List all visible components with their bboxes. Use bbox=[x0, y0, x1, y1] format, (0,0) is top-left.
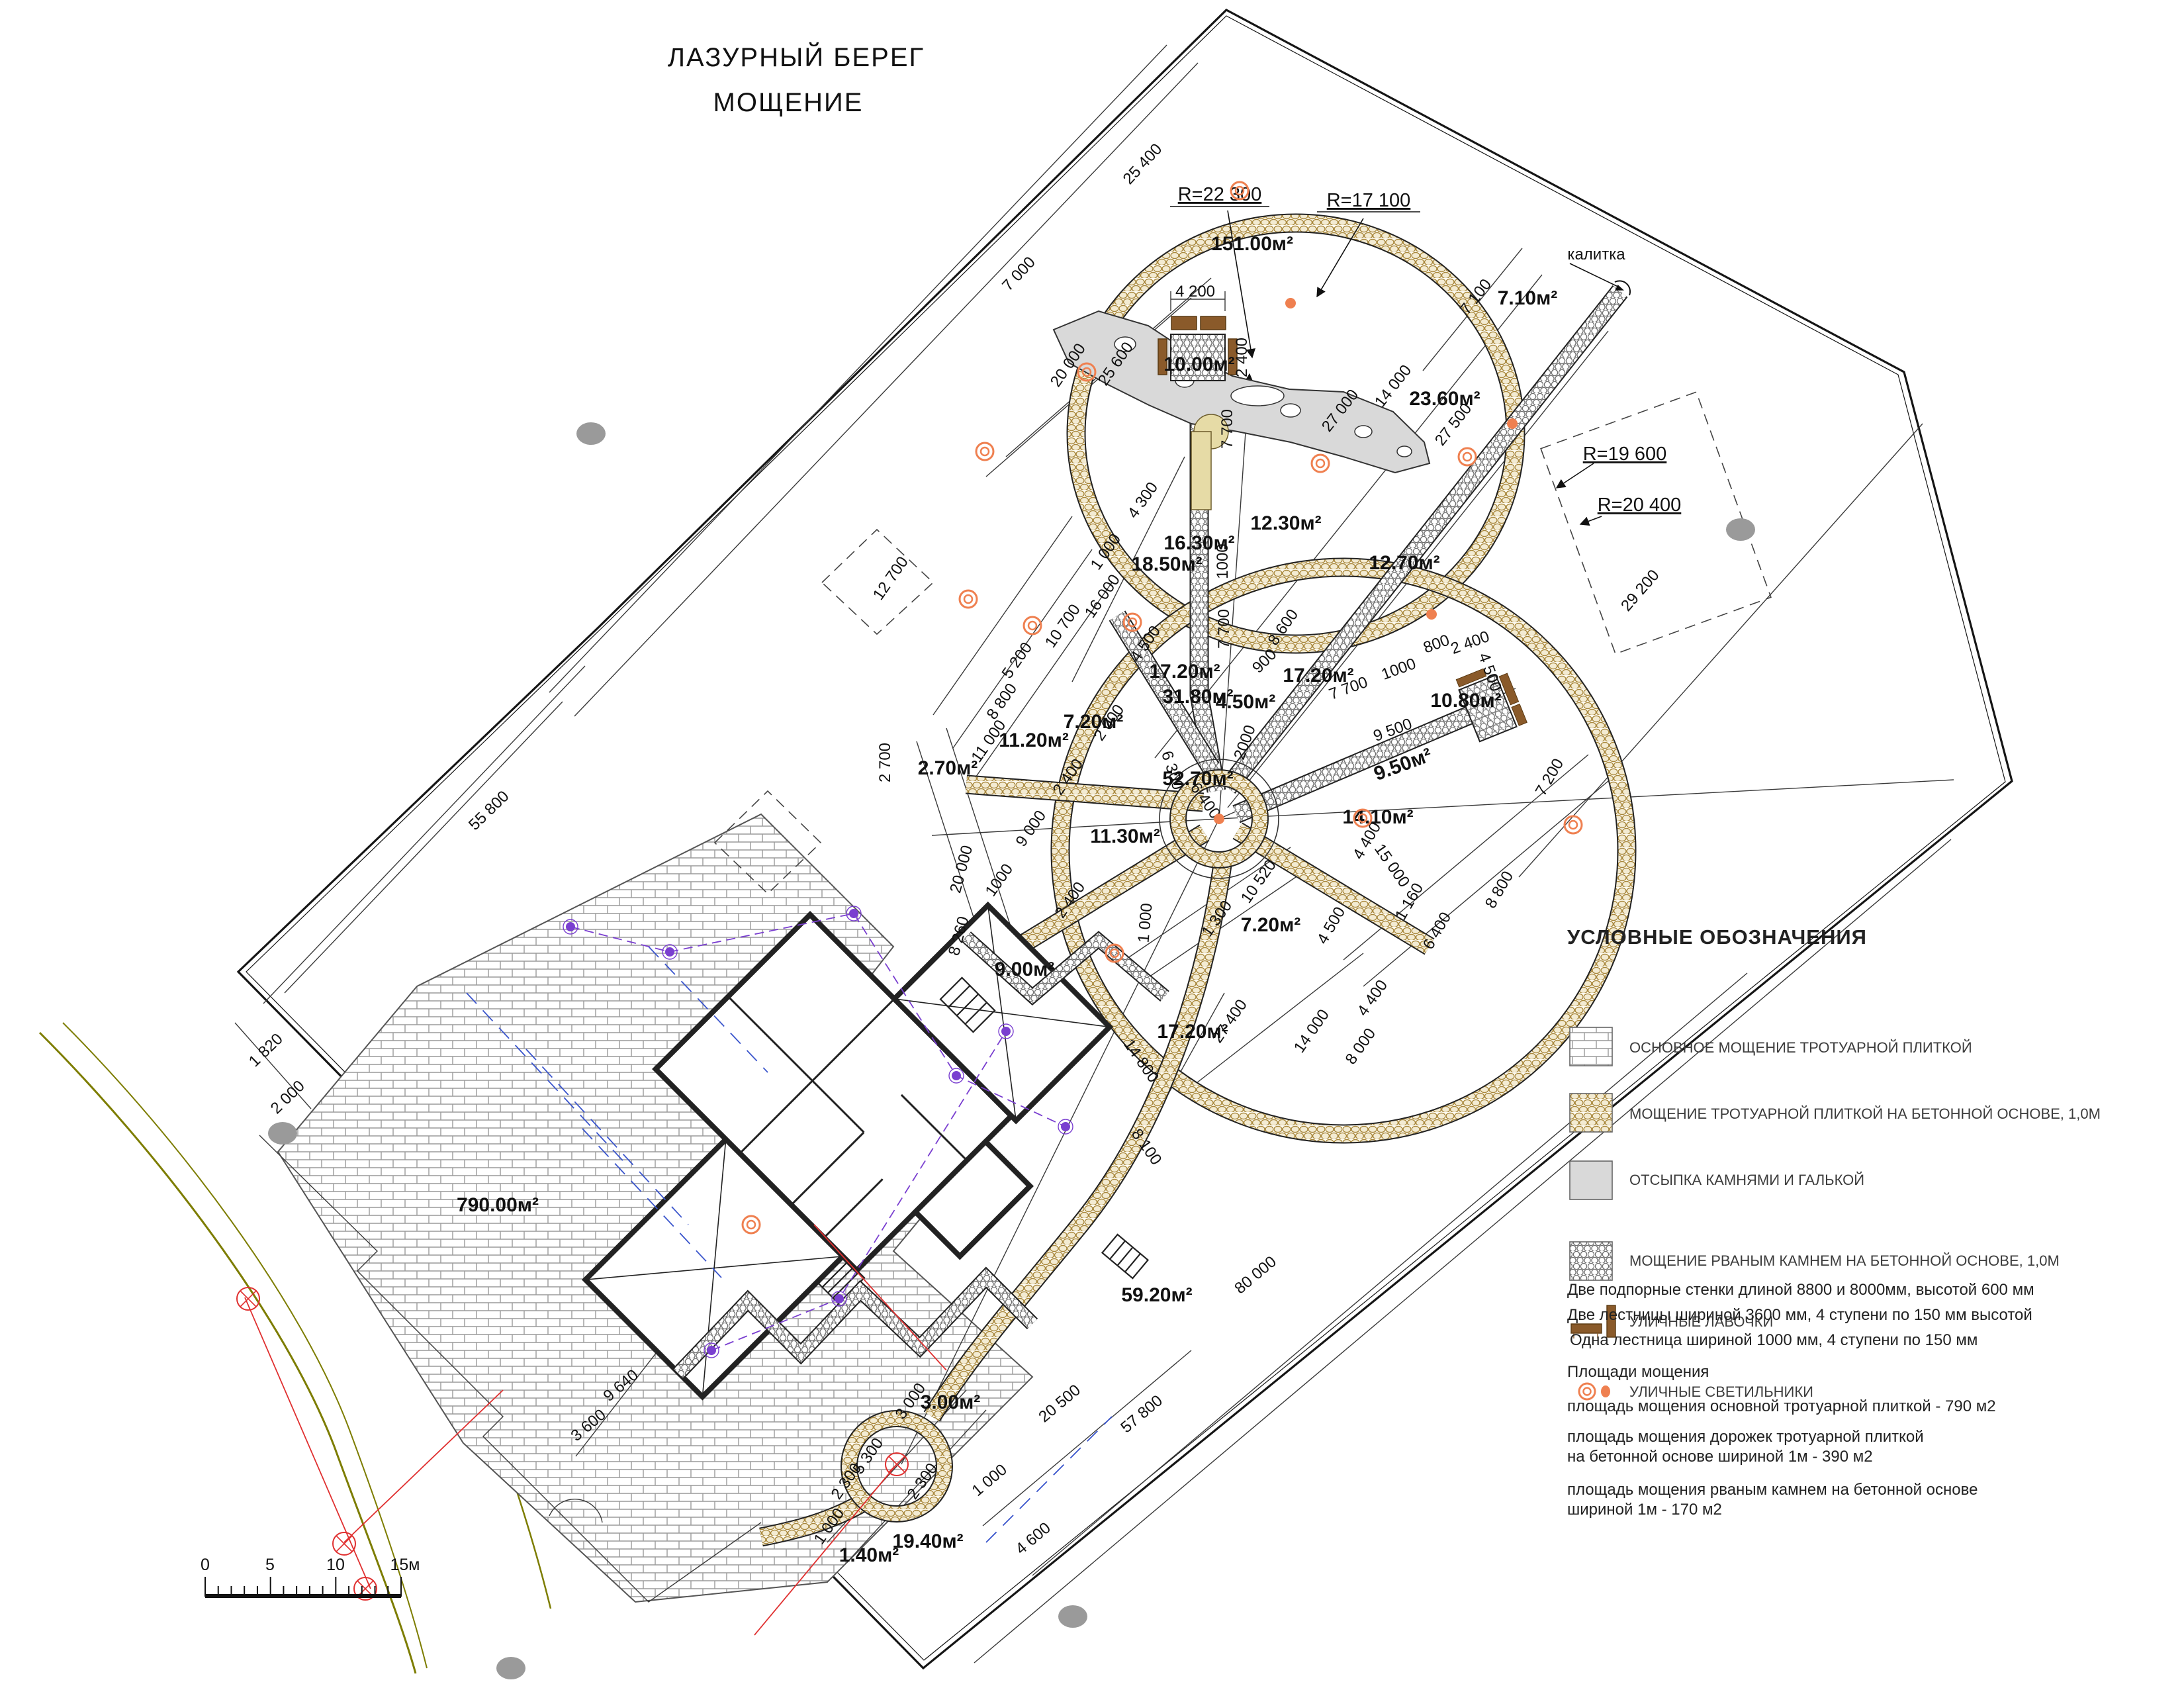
svg-text:4.50м²: 4.50м² bbox=[1216, 691, 1276, 713]
svg-text:8 000: 8 000 bbox=[1342, 1025, 1380, 1068]
svg-text:14 000: 14 000 bbox=[1291, 1006, 1333, 1056]
svg-text:1.40м²: 1.40м² bbox=[839, 1544, 899, 1566]
svg-text:16.30м²: 16.30м² bbox=[1163, 532, 1234, 554]
cobble-swatch bbox=[1570, 1094, 1612, 1132]
svg-text:7 000: 7 000 bbox=[999, 254, 1039, 295]
svg-text:18.50м²: 18.50м² bbox=[1131, 553, 1202, 575]
svg-text:55 800: 55 800 bbox=[465, 787, 513, 833]
svg-text:ОТСЫПКА КАМНЯМИ И ГАЛЬКОЙ: ОТСЫПКА КАМНЯМИ И ГАЛЬКОЙ bbox=[1629, 1172, 1864, 1188]
brick-swatch bbox=[1570, 1027, 1612, 1066]
legend-header: УСЛОВНЫЕ ОБОЗНАЧЕНИЯ bbox=[1567, 925, 1867, 949]
svg-text:3.00м²: 3.00м² bbox=[921, 1391, 981, 1413]
stairs-icon bbox=[1102, 1235, 1148, 1278]
svg-text:R=20 400: R=20 400 bbox=[1598, 494, 1682, 516]
svg-text:800: 800 bbox=[1421, 631, 1452, 657]
legend: УСЛОВНЫЕ ОБОЗНАЧЕНИЯ ОСНОВНОЕ МОЩЕНИЕ ТР… bbox=[1567, 925, 2101, 1400]
svg-text:Одна лестница шириной 1000 мм,: Одна лестница шириной 1000 мм, 4 ступени… bbox=[1570, 1331, 1978, 1349]
svg-text:2 400: 2 400 bbox=[1233, 338, 1251, 377]
svg-text:11.30м²: 11.30м² bbox=[1090, 825, 1160, 847]
svg-text:10 700: 10 700 bbox=[1042, 601, 1084, 651]
svg-text:10.80м²: 10.80м² bbox=[1430, 690, 1501, 712]
svg-text:10.00м²: 10.00м² bbox=[1163, 353, 1234, 375]
svg-text:20 000: 20 000 bbox=[946, 843, 976, 895]
svg-text:7.20м²: 7.20м² bbox=[1241, 914, 1301, 936]
svg-text:2.70м²: 2.70м² bbox=[918, 757, 978, 779]
svg-text:Две подпорные стенки длиной 88: Две подпорные стенки длиной 8800 и 8000м… bbox=[1567, 1281, 2034, 1299]
svg-text:площадь мощения основной троту: площадь мощения основной тротуарной плит… bbox=[1567, 1397, 1996, 1415]
svg-text:25 400: 25 400 bbox=[1120, 140, 1166, 188]
svg-text:1 000: 1 000 bbox=[968, 1461, 1010, 1500]
svg-text:59.20м²: 59.20м² bbox=[1121, 1284, 1192, 1306]
page-subtitle: МОЩЕНИЕ bbox=[713, 88, 864, 117]
svg-text:1 820: 1 820 bbox=[246, 1030, 287, 1070]
svg-text:калитка: калитка bbox=[1567, 246, 1625, 263]
svg-text:4 500: 4 500 bbox=[1314, 904, 1349, 947]
svg-text:на бетонной основе шириной 1м: на бетонной основе шириной 1м - 390 м2 bbox=[1567, 1448, 1873, 1466]
svg-text:12.70м²: 12.70м² bbox=[1369, 552, 1439, 574]
bench-icon bbox=[1171, 316, 1197, 330]
svg-text:4 400: 4 400 bbox=[1354, 976, 1392, 1019]
svg-text:15м: 15м bbox=[390, 1556, 420, 1574]
svg-text:4 300: 4 300 bbox=[1124, 479, 1162, 522]
svg-text:7 700: 7 700 bbox=[1218, 409, 1236, 449]
svg-text:6 400: 6 400 bbox=[1420, 909, 1455, 953]
svg-text:80 000: 80 000 bbox=[1231, 1252, 1280, 1297]
rough-swatch bbox=[1570, 1242, 1612, 1280]
svg-text:1000: 1000 bbox=[1379, 655, 1418, 684]
svg-text:23.60м²: 23.60м² bbox=[1409, 388, 1480, 410]
page-title: ЛАЗУРНЫЙ БЕРЕГ bbox=[668, 42, 925, 72]
scale-bar: 0 5 10 15м bbox=[201, 1556, 420, 1598]
svg-text:2 700: 2 700 bbox=[876, 743, 894, 782]
site-plan: ЛАЗУРНЫЙ БЕРЕГ МОЩЕНИЕ bbox=[0, 0, 2184, 1688]
svg-text:16 000: 16 000 bbox=[1081, 571, 1124, 622]
svg-text:29 200: 29 200 bbox=[1617, 567, 1663, 615]
svg-text:57 800: 57 800 bbox=[1117, 1391, 1166, 1436]
svg-text:9.00м²: 9.00м² bbox=[995, 959, 1055, 980]
svg-text:R=22 300: R=22 300 bbox=[1178, 184, 1262, 205]
svg-text:Две лестницы шириной 3600 мм,: Две лестницы шириной 3600 мм, 4 ступени … bbox=[1567, 1306, 2032, 1324]
svg-text:шириной 1м - 170 м2: шириной 1м - 170 м2 bbox=[1567, 1501, 1722, 1519]
svg-text:14 000: 14 000 bbox=[1371, 361, 1415, 410]
svg-text:1000: 1000 bbox=[981, 861, 1017, 900]
svg-text:5 200: 5 200 bbox=[999, 639, 1036, 682]
svg-text:5: 5 bbox=[265, 1556, 275, 1574]
svg-text:R=17 100: R=17 100 bbox=[1327, 190, 1411, 211]
svg-text:7.10м²: 7.10м² bbox=[1498, 287, 1558, 309]
svg-text:R=19 600: R=19 600 bbox=[1583, 444, 1667, 465]
svg-text:4 200: 4 200 bbox=[1175, 283, 1215, 301]
pebble-swatch bbox=[1570, 1161, 1612, 1199]
svg-text:7.20м²: 7.20м² bbox=[1064, 711, 1124, 733]
wooden-deck bbox=[1191, 432, 1211, 510]
svg-text:4 600: 4 600 bbox=[1012, 1519, 1054, 1558]
svg-text:МОЩЕНИЕ ТРОТУАРНОЙ ПЛИТКОЙ НА: МОЩЕНИЕ ТРОТУАРНОЙ ПЛИТКОЙ НА БЕТОННОЙ О… bbox=[1629, 1105, 2101, 1122]
notes: Две подпорные стенки длиной 8800 и 8000м… bbox=[1567, 1281, 2034, 1519]
svg-text:20 500: 20 500 bbox=[1035, 1381, 1084, 1426]
svg-text:МОЩЕНИЕ РВАНЫМ КАМНЕМ НА БЕТОН: МОЩЕНИЕ РВАНЫМ КАМНЕМ НА БЕТОННОЙ ОСНОВЕ… bbox=[1629, 1252, 2060, 1269]
svg-text:12 700: 12 700 bbox=[870, 553, 912, 604]
svg-text:19.40м²: 19.40м² bbox=[892, 1530, 963, 1552]
svg-text:Площади мощения: Площади мощения bbox=[1567, 1363, 1709, 1381]
svg-text:15 000: 15 000 bbox=[1371, 841, 1413, 891]
svg-text:0: 0 bbox=[201, 1556, 210, 1574]
svg-text:11.20м²: 11.20м² bbox=[999, 729, 1069, 751]
svg-text:151.00м²: 151.00м² bbox=[1211, 233, 1293, 255]
svg-text:ОСНОВНОЕ МОЩЕНИЕ ТРОТУАРНОЙ ПЛ: ОСНОВНОЕ МОЩЕНИЕ ТРОТУАРНОЙ ПЛИТКОЙ bbox=[1629, 1039, 1972, 1056]
bench-icon bbox=[1201, 316, 1226, 330]
svg-text:790.00м²: 790.00м² bbox=[457, 1194, 539, 1216]
svg-text:10: 10 bbox=[326, 1556, 345, 1574]
svg-text:площадь мощения дорожек тротуа: площадь мощения дорожек тротуарной плитк… bbox=[1567, 1428, 1924, 1446]
svg-text:12.30м²: 12.30м² bbox=[1250, 512, 1321, 534]
svg-text:1 000: 1 000 bbox=[1134, 902, 1156, 943]
svg-text:8 800: 8 800 bbox=[983, 680, 1021, 723]
svg-text:17.20м²: 17.20м² bbox=[1149, 661, 1220, 682]
svg-text:площадь мощения рваным камнем: площадь мощения рваным камнем на бетонно… bbox=[1567, 1481, 1978, 1499]
svg-text:8 800: 8 800 bbox=[1482, 868, 1517, 912]
svg-text:7 700: 7 700 bbox=[1215, 609, 1233, 649]
